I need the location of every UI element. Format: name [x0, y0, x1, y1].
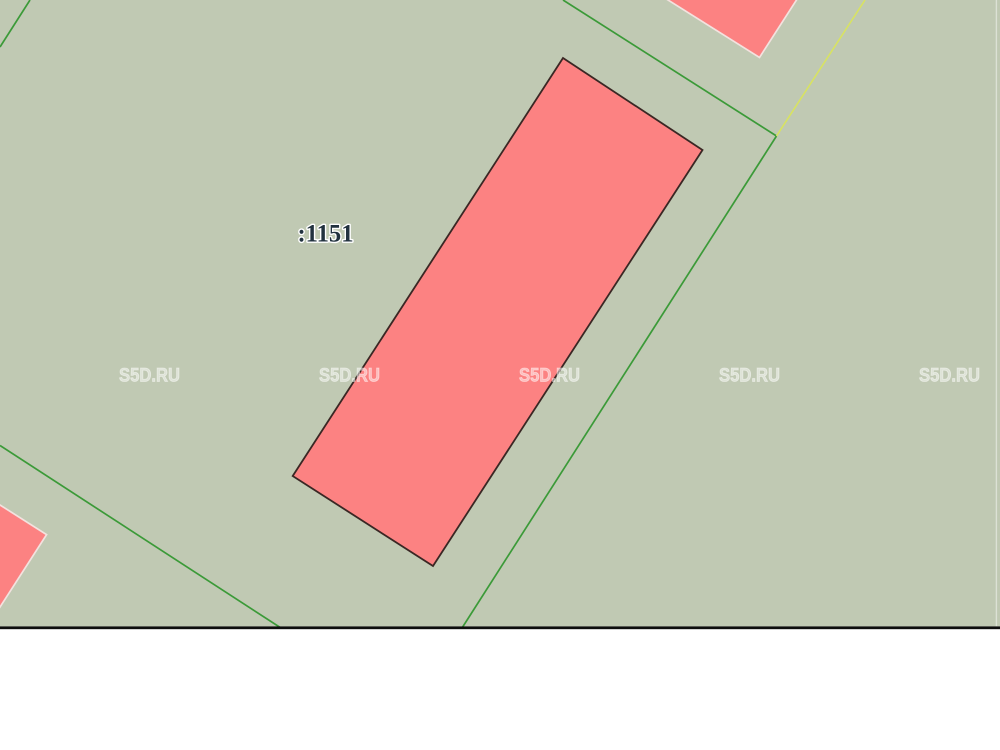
- svg-text:S5D.RU: S5D.RU: [519, 365, 580, 387]
- svg-text::1151: :1151: [298, 221, 354, 248]
- svg-text:S5D.RU: S5D.RU: [919, 365, 980, 387]
- svg-text:S5D.RU: S5D.RU: [319, 365, 380, 387]
- svg-text:S5D.RU: S5D.RU: [119, 365, 180, 387]
- svg-text:S5D.RU: S5D.RU: [719, 365, 780, 387]
